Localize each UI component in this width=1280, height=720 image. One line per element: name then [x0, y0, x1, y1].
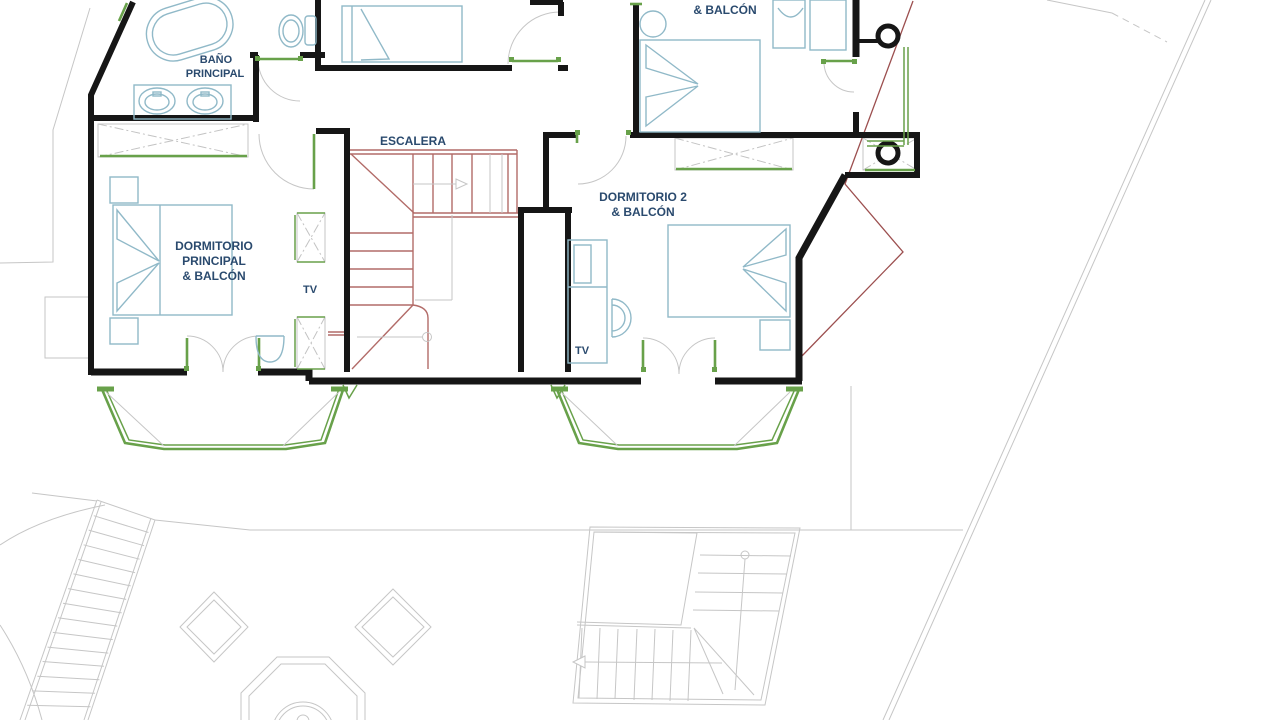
outdoor-staircase — [20, 500, 155, 720]
bay-window-right — [551, 387, 803, 449]
side-table-icon — [640, 11, 666, 37]
double-bed-icon — [668, 225, 790, 317]
master-bedroom-label: DORMITORIO — [175, 239, 253, 253]
double-sink-icon — [134, 85, 231, 119]
garden-staircase — [573, 527, 800, 705]
stairs-label: ESCALERA — [380, 134, 446, 148]
bedroom2-furniture — [568, 225, 790, 363]
floor-plan-drawing: BAÑO PRINCIPAL ESCALERA DORMITORIO PRINC… — [0, 0, 1280, 720]
master-bedroom-label: PRINCIPAL — [182, 254, 246, 268]
room-labels: BAÑO PRINCIPAL ESCALERA DORMITORIO PRINC… — [175, 2, 757, 357]
single-bed-icon — [342, 6, 462, 62]
chair-icon — [612, 299, 631, 337]
bathroom-label: BAÑO — [200, 53, 233, 66]
site-boundary-lines — [0, 0, 1211, 720]
fountain — [241, 657, 365, 720]
wardrobe-icon — [773, 0, 805, 48]
nightstand-icon — [760, 320, 790, 350]
wardrobe-icon — [810, 0, 846, 50]
nightstand-icon — [110, 177, 138, 203]
bedroom3-label: & BALCÓN — [693, 2, 756, 17]
master-bedroom-label: & BALCÓN — [182, 268, 245, 283]
planter-diamonds — [180, 589, 431, 665]
bedroom2-label: DORMITORIO 2 — [599, 190, 687, 204]
bay-window-left — [97, 387, 348, 449]
tv-label: TV — [575, 345, 590, 357]
bedroom3-furniture — [640, 0, 846, 132]
bathroom-label: PRINCIPAL — [186, 68, 245, 80]
staircase-symbol — [328, 150, 518, 369]
bedroom2-label: & BALCÓN — [611, 204, 674, 219]
tv-label: TV — [303, 284, 318, 296]
column-icon — [878, 26, 898, 46]
stair-up-arrow — [456, 179, 467, 189]
nightstand-icon — [110, 318, 138, 344]
toilet-icon — [279, 15, 316, 47]
balcony-columns — [878, 26, 898, 163]
floor-plan: BAÑO PRINCIPAL ESCALERA DORMITORIO PRINC… — [0, 0, 1280, 720]
stair-direction-arrow — [573, 656, 585, 668]
small-bedroom-furniture — [342, 6, 462, 62]
